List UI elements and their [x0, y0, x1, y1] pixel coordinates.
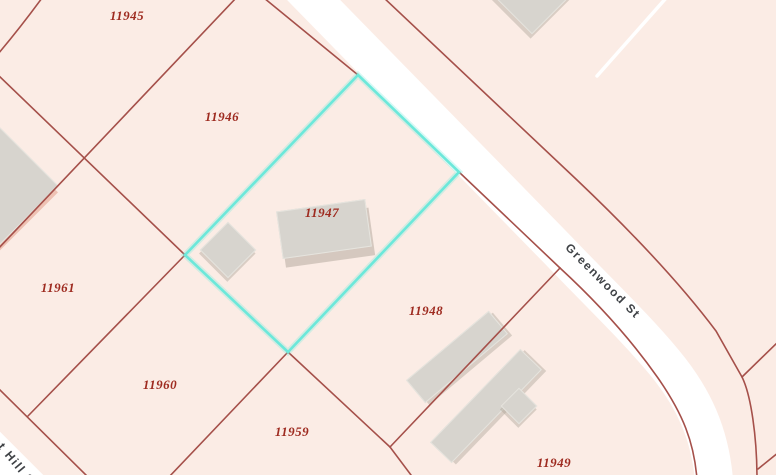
parcel-label-11949[interactable]: 11949 — [537, 455, 571, 471]
parcel-label-11959[interactable]: 11959 — [275, 424, 309, 440]
boundary-11948-11949 — [390, 268, 560, 447]
map-canvas[interactable]: Greenwood St East Hill St 11945 11946 11… — [0, 0, 776, 475]
parcel-label-11961[interactable]: 11961 — [41, 280, 75, 296]
greenwood-street-road — [298, 0, 714, 475]
parcel-label-11960[interactable]: 11960 — [143, 377, 177, 393]
parcel-label-11946[interactable]: 11946 — [205, 109, 239, 125]
boundary-11960-11959 — [168, 352, 288, 475]
boundary-11959-11949 — [390, 447, 414, 475]
boundary-curve-top-left — [0, 0, 42, 54]
map-line-overlay — [0, 0, 776, 475]
boundary-corner-branch — [758, 452, 776, 469]
boundary-east-branch — [742, 340, 776, 377]
boundary-11945-11946 — [0, 0, 237, 250]
parcel-label-11948[interactable]: 11948 — [409, 303, 443, 319]
parcel-label-11945[interactable]: 11945 — [110, 8, 144, 24]
parcel-label-11947-selected[interactable]: 11947 — [305, 205, 339, 221]
boundary-11945-11961 — [0, 73, 185, 255]
path-line — [597, 0, 667, 76]
